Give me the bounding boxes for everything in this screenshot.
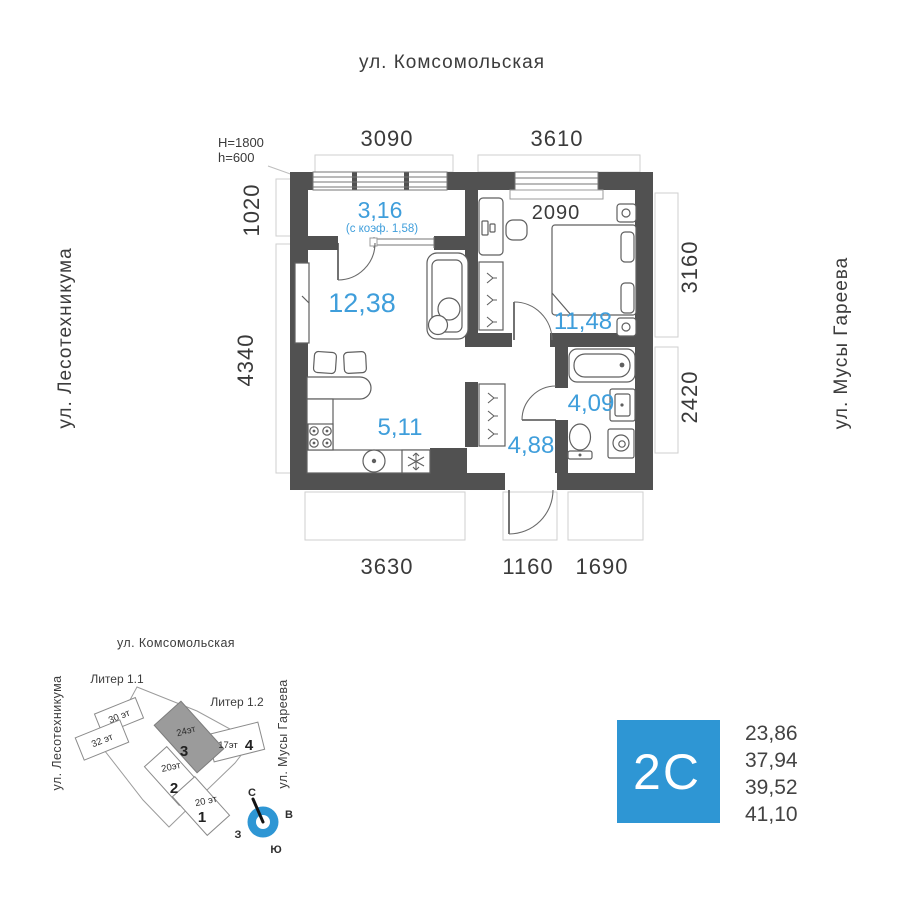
building-1-number: 1: [198, 809, 206, 826]
living-area-label: 12,38: [328, 288, 396, 318]
bedroom-wardrobe: [479, 262, 503, 330]
liter-12-label: Литер 1.2: [210, 695, 264, 709]
kitchen-bar-table: [307, 377, 371, 399]
hall-wardrobe: [479, 384, 505, 446]
balcony-glazing-window: [313, 172, 447, 190]
kitchen-sink: [363, 450, 385, 472]
site-street-right: ул. Мусы Гареева: [276, 679, 290, 788]
dim-right-bottom: 2420: [677, 371, 702, 424]
entrance-door: [509, 490, 553, 534]
kitchen-area-label: 5,11: [378, 414, 423, 441]
street-right-label: ул. Мусы Гареева: [831, 257, 852, 429]
dim-top-left: 3090: [361, 126, 414, 151]
dim-left-bottom: 4340: [233, 334, 258, 387]
legend-area-1: 23,86: [745, 722, 798, 745]
legend-area-2: 37,94: [745, 749, 798, 772]
bathroom-door: [522, 386, 556, 420]
liter-11-label: Литер 1.1: [90, 672, 144, 686]
site-street-top: ул. Комсомольская: [117, 636, 235, 650]
parapet-h-label: h=600: [218, 150, 255, 165]
bedroom-door: [514, 302, 552, 340]
radiator: [295, 263, 309, 343]
dim-bottom-center: 1160: [502, 554, 553, 579]
balcony-area-note: (с коэф. 1,58): [346, 223, 418, 235]
bedroom-area-label: 11,48: [554, 308, 612, 335]
dim-right-top: 3160: [677, 241, 702, 294]
compass-south: Ю: [270, 844, 281, 856]
balcony-door: [338, 243, 375, 280]
dim-left-top: 1020: [239, 184, 264, 237]
desk-chair: [506, 220, 527, 240]
legend-area-3: 39,52: [745, 776, 798, 799]
bathroom-area-label: 4,09: [568, 390, 615, 417]
street-top-label: ул. Комсомольская: [359, 52, 545, 73]
sofa: [427, 253, 468, 339]
legend-area-4: 41,10: [745, 803, 798, 826]
site-plan: ул. Комсомольская ул. Лесотехникума ул. …: [50, 636, 293, 856]
building-2-number: 2: [170, 780, 178, 797]
desk: [479, 198, 503, 255]
balcony-area-label: 3,16: [358, 197, 403, 223]
dim-top-right: 3610: [531, 126, 584, 151]
fridge: [402, 450, 430, 473]
building-4-floors: 17эт: [218, 740, 238, 751]
floorplan-page: ул. Комсомольская ул. Лесотехникума ул. …: [0, 0, 900, 900]
bed: [552, 225, 636, 315]
building-4-number: 4: [245, 737, 254, 754]
kitchen-stools: [313, 351, 366, 373]
living-balcony-window: [370, 237, 434, 248]
stove: [308, 424, 333, 450]
apartment-type-label: 2С: [633, 744, 701, 800]
compass: С В З Ю: [235, 787, 293, 856]
street-left-label: ул. Лесотехникума: [55, 247, 76, 428]
building-3-number: 3: [180, 743, 188, 760]
dim-bottom-left: 3630: [361, 554, 414, 579]
bathtub: [569, 349, 635, 382]
hall-area-label: 4,88: [508, 432, 555, 459]
washing-machine: [608, 429, 634, 458]
dim-bottom-right: 1690: [576, 554, 629, 579]
bedroom-window: [510, 172, 603, 199]
dim-bedroom-inner: 2090: [532, 202, 581, 224]
apartment-type-legend: 2С 23,86 37,94 39,52 41,10: [617, 720, 798, 826]
compass-north: С: [248, 787, 256, 799]
toilet: [568, 424, 592, 459]
site-street-left: ул. Лесотехникума: [50, 676, 64, 791]
parapet-H-label: H=1800: [218, 135, 264, 150]
compass-west: З: [235, 829, 242, 841]
compass-east: В: [285, 809, 293, 821]
floorplan-image: ул. Комсомольская ул. Лесотехникума ул. …: [0, 0, 900, 900]
